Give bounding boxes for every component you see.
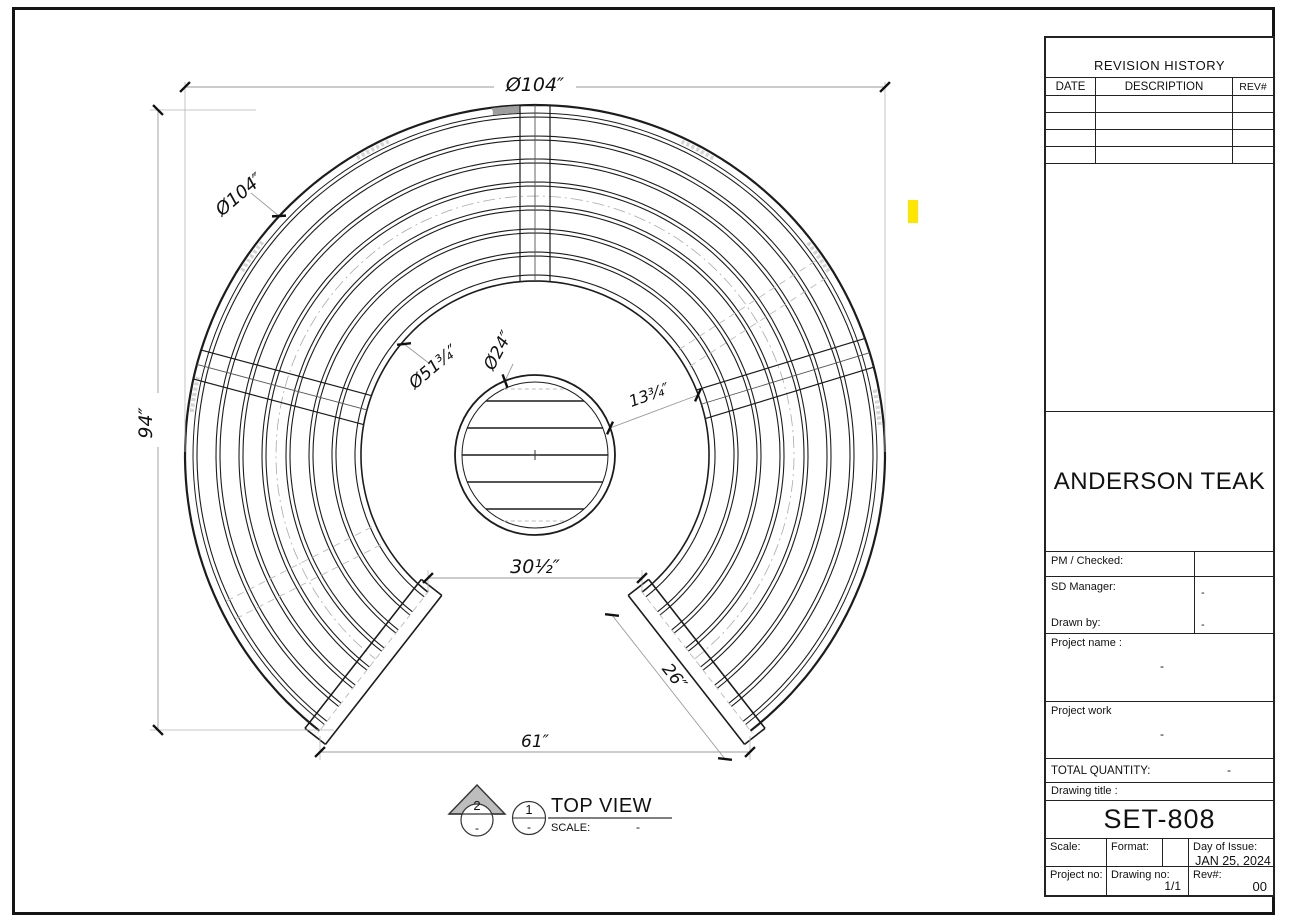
total-quantity-row: TOTAL QUANTITY: - [1046,758,1273,782]
revision-history-header: DATE DESCRIPTION REV# [1046,77,1273,96]
marker-1-number: 1 [525,802,532,817]
day-of-issue-label: Day of Issue: [1193,841,1273,853]
revision-row [1046,96,1273,113]
sheet-info-row-1: Scale: Format: Day of Issue: JAN 25, 202… [1046,838,1273,866]
project-work-value: - [1051,727,1273,741]
project-name-cell: Project name : - [1046,633,1273,701]
project-name-label: Project name : [1051,637,1273,649]
view-title-group: 2 - 1 - TOP VIEW SCALE: - [449,785,672,836]
yellow-highlight-marker [908,200,918,223]
dim-inner-diameter: Ø51¾″ [404,341,462,395]
drawing-title-value: SET-808 [1046,800,1273,838]
col-date: DATE [1046,78,1096,95]
sheet-info-row-2: Project no: Drawing no: 1/1 Rev#: 00 [1046,866,1273,895]
day-of-issue-cell: Day of Issue: JAN 25, 2024 [1188,839,1273,866]
marker-1-sub: - [527,820,531,834]
total-quantity-label: TOTAL QUANTITY: [1051,765,1150,777]
drawing-title-label: Drawing title : [1046,782,1273,800]
revision-history-title: REVISION HISTORY [1046,38,1273,77]
dim-outer-opening-width: 61″ [521,732,550,752]
drawing-no-value: 1/1 [1164,879,1181,893]
dim-outer-diameter-top: Ø104″ [505,74,564,96]
dim-seat-depth: 26″ [657,660,690,695]
rev-cell: Rev#: 00 [1188,867,1273,895]
company-name: ANDERSON TEAK [1046,411,1273,551]
empty-cell [1162,839,1188,866]
col-description: DESCRIPTION [1096,78,1233,95]
dim-outer-diameter-arc: Ø104″ [211,169,268,221]
revision-row [1046,130,1273,147]
project-work-cell: Project work - [1046,701,1273,758]
sd-manager-value: - [1201,587,1273,599]
format-label: Format: [1106,839,1162,866]
top-view-drawing: Ø104″ 94″ Ø104″ Ø51¾″ Ø24″ 13¾″ 30½″ 61″… [0,0,1040,924]
title-block-spacer [1046,164,1273,411]
view-scale-value: - [636,820,640,834]
project-work-label: Project work [1051,705,1273,717]
drawn-by-label: Drawn by: [1051,617,1194,629]
scale-label: Scale: [1046,839,1106,866]
dim-table-to-seat-gap: 13¾″ [626,379,672,411]
drawn-by-value: - [1201,619,1273,631]
pm-checked-label: PM / Checked: [1046,552,1194,576]
marker-2-number: 2 [473,798,480,813]
pm-checked-row: PM / Checked: [1046,551,1273,576]
day-of-issue-value: JAN 25, 2024 [1193,854,1273,868]
dim-overall-height: 94″ [135,407,157,438]
sd-drawn-row: SD Manager: Drawn by: - - [1046,576,1273,633]
revision-row [1046,113,1273,130]
title-block: REVISION HISTORY DATE DESCRIPTION REV# A… [1044,36,1275,897]
pm-checked-value [1194,552,1273,576]
dim-inner-opening-width: 30½″ [510,556,560,578]
total-quantity-value: - [1227,765,1231,777]
project-no-label: Project no: [1046,867,1106,895]
rev-value: 00 [1253,879,1267,894]
col-rev: REV# [1233,78,1273,95]
project-name-value: - [1051,659,1273,673]
drawing-no-cell: Drawing no: 1/1 [1106,867,1188,895]
marker-2-sub: - [475,821,479,835]
drawing-sheet: Ø104″ 94″ Ø104″ Ø51¾″ Ø24″ 13¾″ 30½″ 61″… [0,0,1291,924]
view-title: TOP VIEW [551,795,652,817]
view-scale-label: SCALE: [551,822,590,834]
sd-manager-label: SD Manager: [1051,581,1194,593]
revision-row [1046,147,1273,164]
